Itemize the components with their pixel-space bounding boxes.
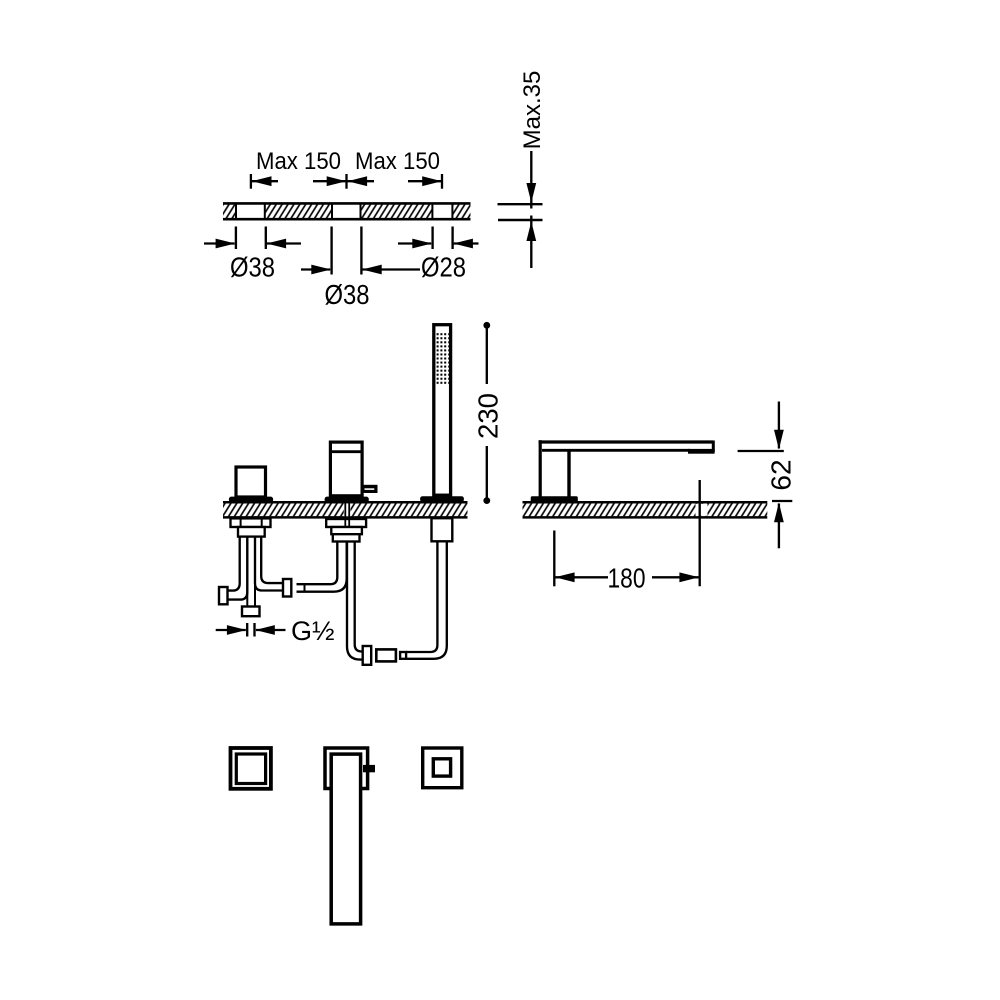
svg-text:Max 150: Max 150: [355, 148, 440, 175]
svg-text:Ø38: Ø38: [230, 252, 275, 283]
svg-text:Max 150: Max 150: [256, 148, 341, 175]
svg-text:230: 230: [473, 393, 504, 439]
svg-text:Ø38: Ø38: [325, 279, 370, 310]
svg-text:Ø28: Ø28: [421, 252, 466, 283]
svg-text:180: 180: [608, 563, 646, 594]
svg-text:62: 62: [766, 459, 797, 490]
svg-text:G½: G½: [291, 616, 335, 646]
svg-text:Max.35: Max.35: [519, 71, 546, 150]
